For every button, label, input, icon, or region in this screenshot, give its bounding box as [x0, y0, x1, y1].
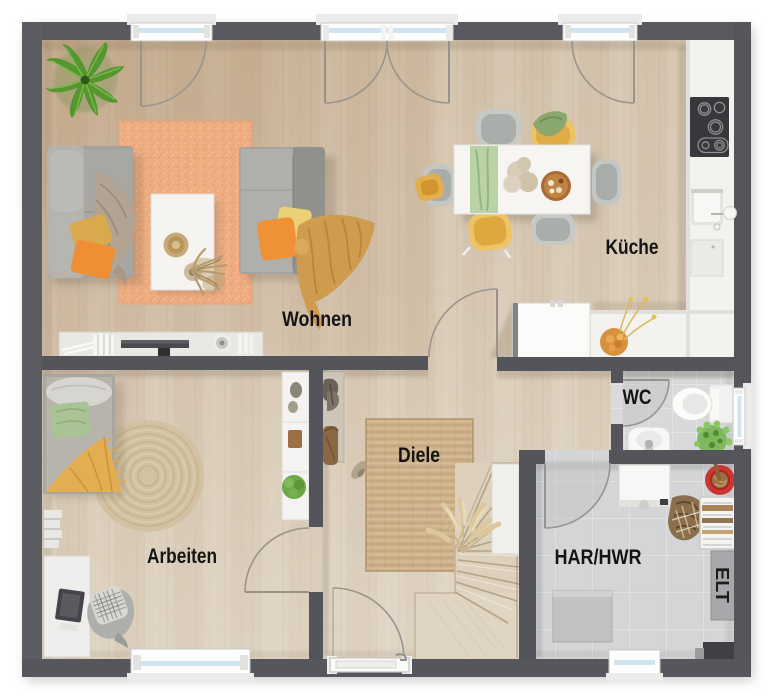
svg-text:WC: WC: [623, 386, 652, 409]
svg-text:Küche: Küche: [606, 236, 659, 259]
svg-text:ELT: ELT: [712, 567, 732, 603]
svg-text:HAR/HWR: HAR/HWR: [555, 546, 642, 569]
svg-text:Wohnen: Wohnen: [282, 308, 352, 331]
svg-text:Diele: Diele: [398, 444, 440, 467]
svg-text:Arbeiten: Arbeiten: [147, 545, 217, 568]
